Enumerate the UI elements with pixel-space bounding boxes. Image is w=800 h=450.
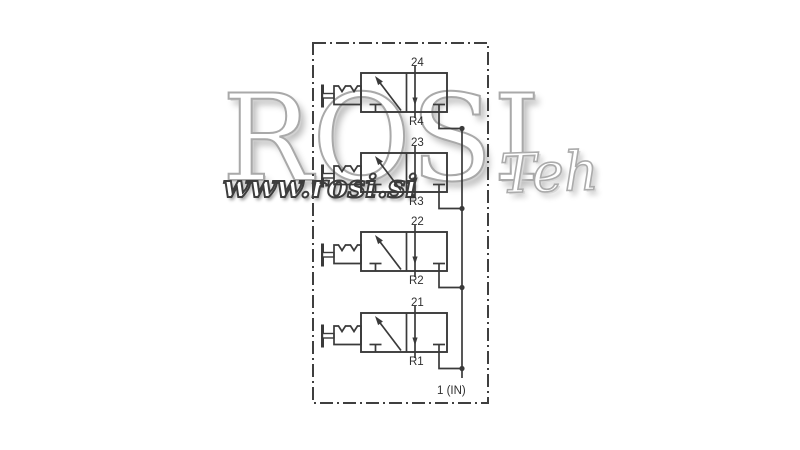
- exhaust-port-label: R3: [409, 196, 424, 208]
- diagram-canvas: ROSI Teh www.rosi.si: [0, 0, 800, 450]
- exhaust-port-label: R4: [409, 116, 424, 128]
- exhaust-port-label: R1: [409, 356, 424, 368]
- valve-symbol-24: [323, 66, 465, 131]
- outlet-port-label: 21: [411, 297, 424, 309]
- outlet-port-label: 24: [411, 57, 424, 69]
- valve-symbol-21: [323, 306, 465, 371]
- valve-symbol-22: [323, 225, 465, 290]
- pneumatic-schematic: 24 R4 23 R3 22 R2 21 R1 1 (IN): [0, 0, 800, 450]
- outlet-port-label: 22: [411, 216, 424, 228]
- valve-symbol-23: [323, 146, 465, 211]
- outlet-port-label: 23: [411, 137, 424, 149]
- supply-inlet-label: 1 (IN): [437, 385, 466, 397]
- exhaust-port-label: R2: [409, 275, 424, 287]
